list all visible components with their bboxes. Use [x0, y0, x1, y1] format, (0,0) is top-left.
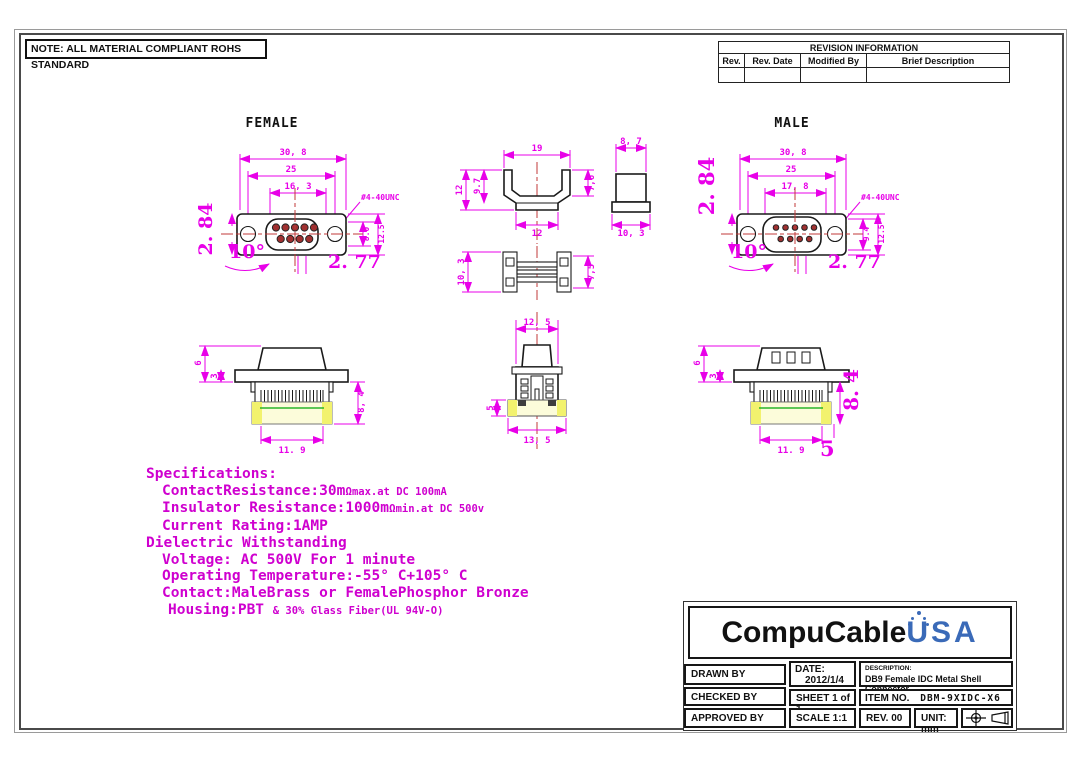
svg-text:8, 4: 8, 4 — [357, 391, 367, 413]
svg-text:12, 5: 12, 5 — [523, 318, 550, 328]
spec-insulator-resistance: Insulator Resistance:1000mΩmin.at DC 500… — [146, 500, 566, 518]
svg-text:5: 5 — [486, 405, 496, 410]
svg-text:8, 7: 8, 7 — [620, 137, 642, 147]
spec-temperature: Operating Temperature:-55° C+105° C — [146, 568, 566, 585]
revision-col-modified: Modified By — [801, 54, 867, 68]
svg-text:#4-40UNC: #4-40UNC — [861, 193, 900, 202]
svg-text:9.4: 9.4 — [862, 227, 871, 242]
date-cell: DATE: 2012/1/4 — [789, 661, 856, 687]
spec-contact-material: Contact:MaleBrass or FemalePhosphor Bron… — [146, 585, 566, 602]
item-no-cell: ITEM NO. DBM-9XIDC-X6 — [859, 689, 1013, 706]
revision-table-title: REVISION INFORMATION — [719, 42, 1010, 54]
drawing-sheet: NOTE: ALL MATERIAL COMPLIANT ROHS STANDA… — [0, 0, 1080, 763]
mid-rear-view: 12, 5 5 13, 5 — [455, 312, 625, 449]
svg-text:3: 3 — [709, 373, 719, 378]
specifications-block: Specifications: ContactResistance:30mΩma… — [146, 466, 566, 619]
date-value: 2012/1/4 — [791, 675, 854, 686]
svg-text:6: 6 — [194, 360, 204, 365]
svg-text:10°: 10° — [229, 241, 265, 263]
male-front-view: 30, 8 25 17, 8 #4-40UNC 9.4 — [685, 130, 915, 280]
svg-text:30, 8: 30, 8 — [779, 148, 806, 158]
logo-dots-icon — [908, 611, 930, 629]
unit-cell: UNIT: mm — [914, 708, 958, 728]
svg-text:2. 77: 2. 77 — [828, 251, 881, 273]
projection-symbol-cell — [961, 708, 1013, 728]
description-label: DESCRIPTION: — [861, 663, 1011, 672]
svg-text:25: 25 — [286, 165, 297, 175]
male-view-label: MALE — [752, 116, 832, 131]
svg-text:12: 12 — [532, 229, 543, 239]
svg-text:7,5: 7,5 — [587, 264, 597, 280]
revision-table: REVISION INFORMATION Rev. Rev. Date Modi… — [718, 41, 1010, 83]
svg-text:2. 84: 2. 84 — [694, 157, 719, 215]
svg-text:30, 8: 30, 8 — [279, 148, 306, 158]
sheet-cell: SHEET 1 of 1 — [789, 689, 856, 706]
svg-text:12.5: 12.5 — [377, 224, 386, 243]
svg-text:12.5: 12.5 — [877, 224, 886, 243]
rohs-note: NOTE: ALL MATERIAL COMPLIANT ROHS STANDA… — [25, 39, 267, 59]
svg-text:3: 3 — [210, 373, 220, 378]
date-label: DATE: — [791, 663, 854, 675]
drawn-by-cell: DRAWN BY — [684, 664, 786, 685]
svg-text:7,6: 7,6 — [587, 175, 597, 191]
svg-text:13, 5: 13, 5 — [523, 436, 550, 446]
svg-text:10, 3: 10, 3 — [457, 258, 467, 285]
revision-col-date: Rev. Date — [745, 54, 801, 68]
checked-by-cell: CHECKED BY — [684, 687, 786, 706]
female-side-view: 6 3 8, 4 11. 9 — [185, 332, 380, 460]
spec-voltage: Voltage: AC 500V For 1 minute — [146, 552, 566, 569]
svg-text:11. 9: 11. 9 — [278, 446, 305, 456]
svg-text:12: 12 — [455, 185, 465, 196]
male-side-view: 6 3 8. 4 5 11. 9 — [672, 332, 877, 464]
svg-text:2. 84: 2. 84 — [195, 203, 217, 256]
svg-text:11. 9: 11. 9 — [777, 446, 804, 456]
spec-current-rating: Current Rating:1AMP — [146, 518, 566, 535]
rev-cell: REV. 00 — [859, 708, 911, 728]
description-cell: DESCRIPTION: DB9 Female IDC Metal Shell … — [859, 661, 1013, 687]
female-front-view: 30, 8 25 16, 3 #4-40UNC 8.0 — [185, 130, 415, 280]
item-no-label: ITEM NO. — [861, 691, 909, 704]
svg-text:19: 19 — [532, 144, 543, 154]
revision-col-description: Brief Description — [867, 54, 1010, 68]
spec-contact-resistance: ContactResistance:30mΩmax.at DC 100mA — [146, 483, 566, 501]
mid-side-view: 10, 3 7,5 — [448, 246, 683, 300]
svg-text:9.7: 9.7 — [473, 178, 483, 194]
logo: CompuCableUSA — [688, 606, 1012, 659]
svg-text:6: 6 — [693, 360, 703, 365]
svg-text:8.0: 8.0 — [362, 227, 371, 242]
specs-title: Specifications: — [146, 466, 566, 483]
svg-text:#4-40UNC: #4-40UNC — [361, 193, 400, 202]
title-block: CompuCableUSA DRAWN BY DATE: 2012/1/4 DE… — [683, 601, 1017, 731]
revision-col-rev: Rev. — [719, 54, 745, 68]
third-angle-projection-icon — [964, 710, 1012, 726]
svg-text:25: 25 — [786, 165, 797, 175]
item-no-value: DBM-9XIDC-X6 — [912, 693, 1001, 704]
spec-housing: Housing:PBT & 30% Glass Fiber(UL 94V-O) — [146, 602, 566, 620]
svg-text:10°: 10° — [731, 241, 767, 263]
spec-dielectric: Dielectric Withstanding — [146, 535, 566, 552]
mid-top-view: 19 12 9.7 7,6 12 8, 7 10, 3 — [448, 132, 683, 244]
svg-text:8. 4: 8. 4 — [839, 369, 863, 411]
svg-text:10, 3: 10, 3 — [617, 229, 644, 239]
svg-text:2. 77: 2. 77 — [328, 251, 381, 273]
scale-cell: SCALE 1:1 — [789, 708, 856, 728]
logo-compucable: CompuCable — [721, 616, 906, 649]
approved-by-cell: APPROVED BY — [684, 708, 786, 728]
female-view-label: FEMALE — [232, 116, 312, 131]
svg-text:16, 3: 16, 3 — [284, 182, 311, 192]
